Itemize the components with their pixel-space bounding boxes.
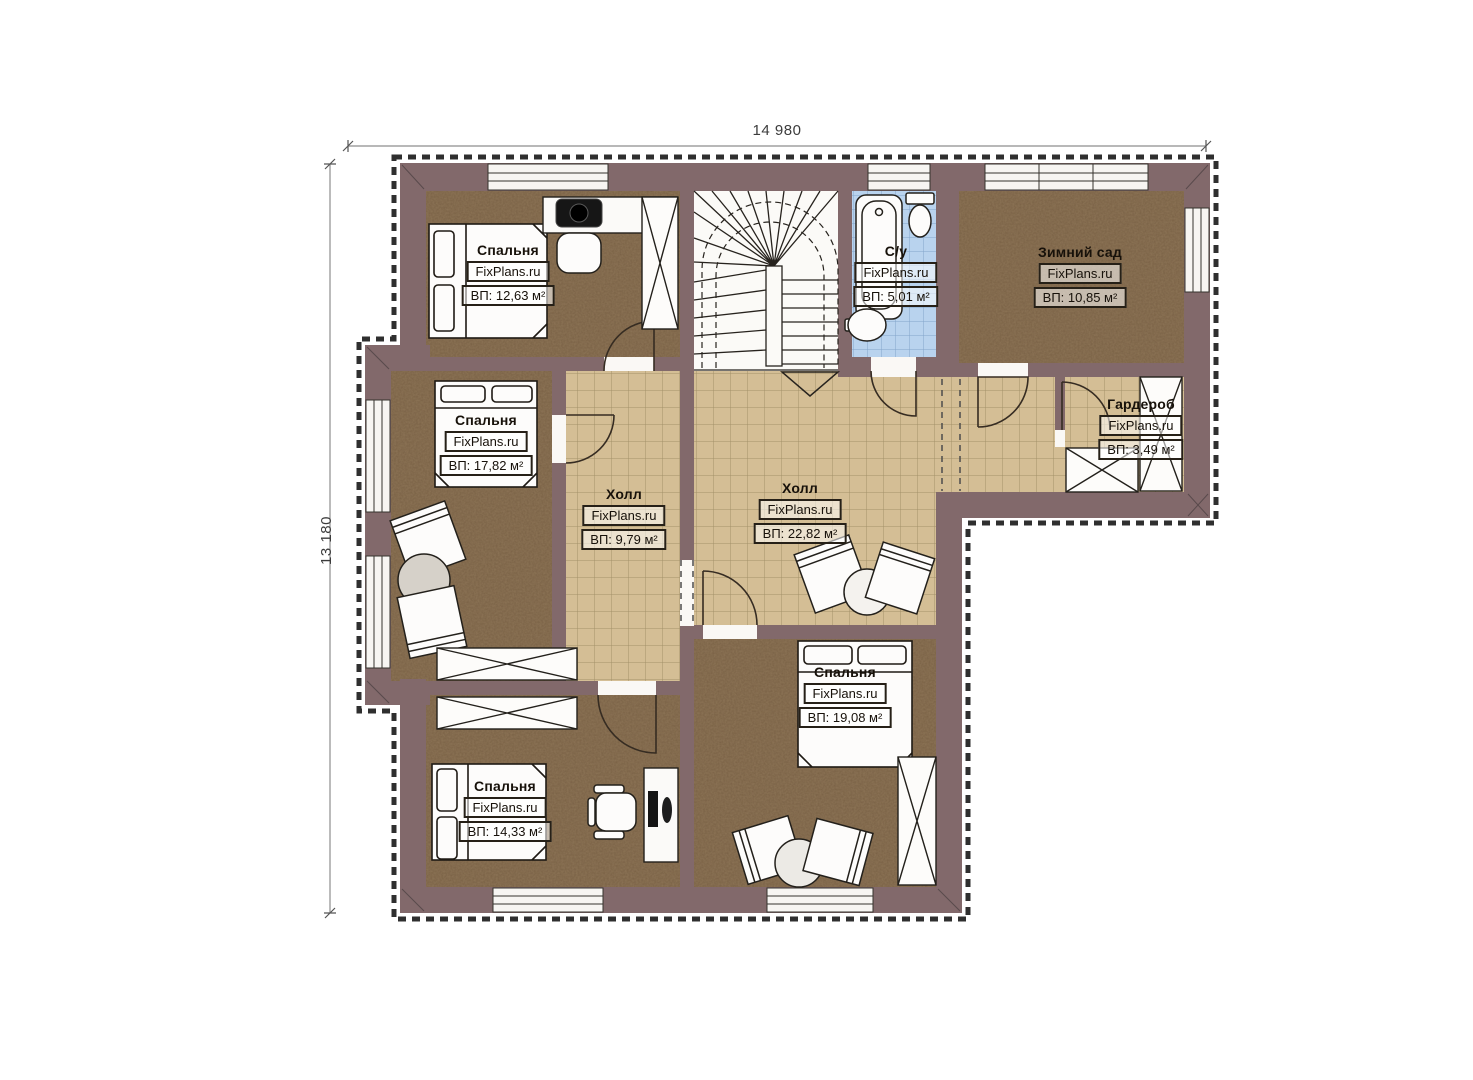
floor-plan: 14 980 13 180 Спальня FixPlans.ru ВП: 12… [0, 0, 1473, 1080]
room-name: Гардероб [1098, 396, 1183, 412]
room-name: Холл [581, 486, 666, 502]
watermark: FixPlans.ru [758, 499, 841, 520]
watermark: FixPlans.ru [463, 797, 546, 818]
room-name: Зимний сад [1034, 244, 1127, 260]
monitor-icon [648, 791, 658, 827]
wardrobe-mid-bedroom [437, 648, 577, 680]
desk-chair [557, 233, 601, 273]
room-label-bedroom-bottom-left: Спальня FixPlans.ru ВП: 14,33 м² [459, 778, 552, 842]
room-name: С/у [853, 243, 938, 259]
watermark: FixPlans.ru [582, 505, 665, 526]
wardrobe-bottom-middle-bedroom [898, 757, 936, 885]
room-label-wardrobe: Гардероб FixPlans.ru ВП: 3,49 м² [1098, 396, 1183, 460]
wardrobe-top-left-bedroom [642, 197, 678, 329]
room-label-hall-main: Холл FixPlans.ru ВП: 22,82 м² [754, 480, 847, 544]
room-area: ВП: 12,63 м² [462, 285, 555, 306]
room-area: ВП: 19,08 м² [799, 707, 892, 728]
room-name: Холл [754, 480, 847, 496]
room-label-bathroom: С/у FixPlans.ru ВП: 5,01 м² [853, 243, 938, 307]
room-label-bedroom-bottom-middle: Спальня FixPlans.ru ВП: 19,08 м² [799, 664, 892, 728]
watermark: FixPlans.ru [1038, 263, 1121, 284]
room-area: ВП: 9,79 м² [581, 529, 666, 550]
room-area: ВП: 3,49 м² [1098, 439, 1183, 460]
watermark: FixPlans.ru [803, 683, 886, 704]
dimension-height-label: 13 180 [318, 516, 335, 565]
room-area: ВП: 5,01 м² [853, 286, 938, 307]
room-name: Спальня [459, 778, 552, 794]
room-name: Спальня [462, 242, 555, 258]
room-area: ВП: 17,82 м² [440, 455, 533, 476]
watermark: FixPlans.ru [444, 431, 527, 452]
room-label-hall-small: Холл FixPlans.ru ВП: 9,79 м² [581, 486, 666, 550]
room-name: Спальня [440, 412, 533, 428]
floor-plan-drawing [0, 0, 1473, 1080]
watermark: FixPlans.ru [854, 262, 937, 283]
office-chair [588, 785, 636, 839]
room-area: ВП: 10,85 м² [1034, 287, 1127, 308]
dimension-width-label: 14 980 [753, 122, 802, 139]
watermark: FixPlans.ru [466, 261, 549, 282]
room-label-bedroom-mid-left: Спальня FixPlans.ru ВП: 17,82 м² [440, 412, 533, 476]
wardrobe-bottom-left-bedroom [437, 697, 577, 729]
room-name: Спальня [799, 664, 892, 680]
room-area: ВП: 22,82 м² [754, 523, 847, 544]
room-label-bedroom-top-left: Спальня FixPlans.ru ВП: 12,63 м² [462, 242, 555, 306]
room-label-winter-garden: Зимний сад FixPlans.ru ВП: 10,85 м² [1034, 244, 1127, 308]
room-area: ВП: 14,33 м² [459, 821, 552, 842]
watermark: FixPlans.ru [1099, 415, 1182, 436]
